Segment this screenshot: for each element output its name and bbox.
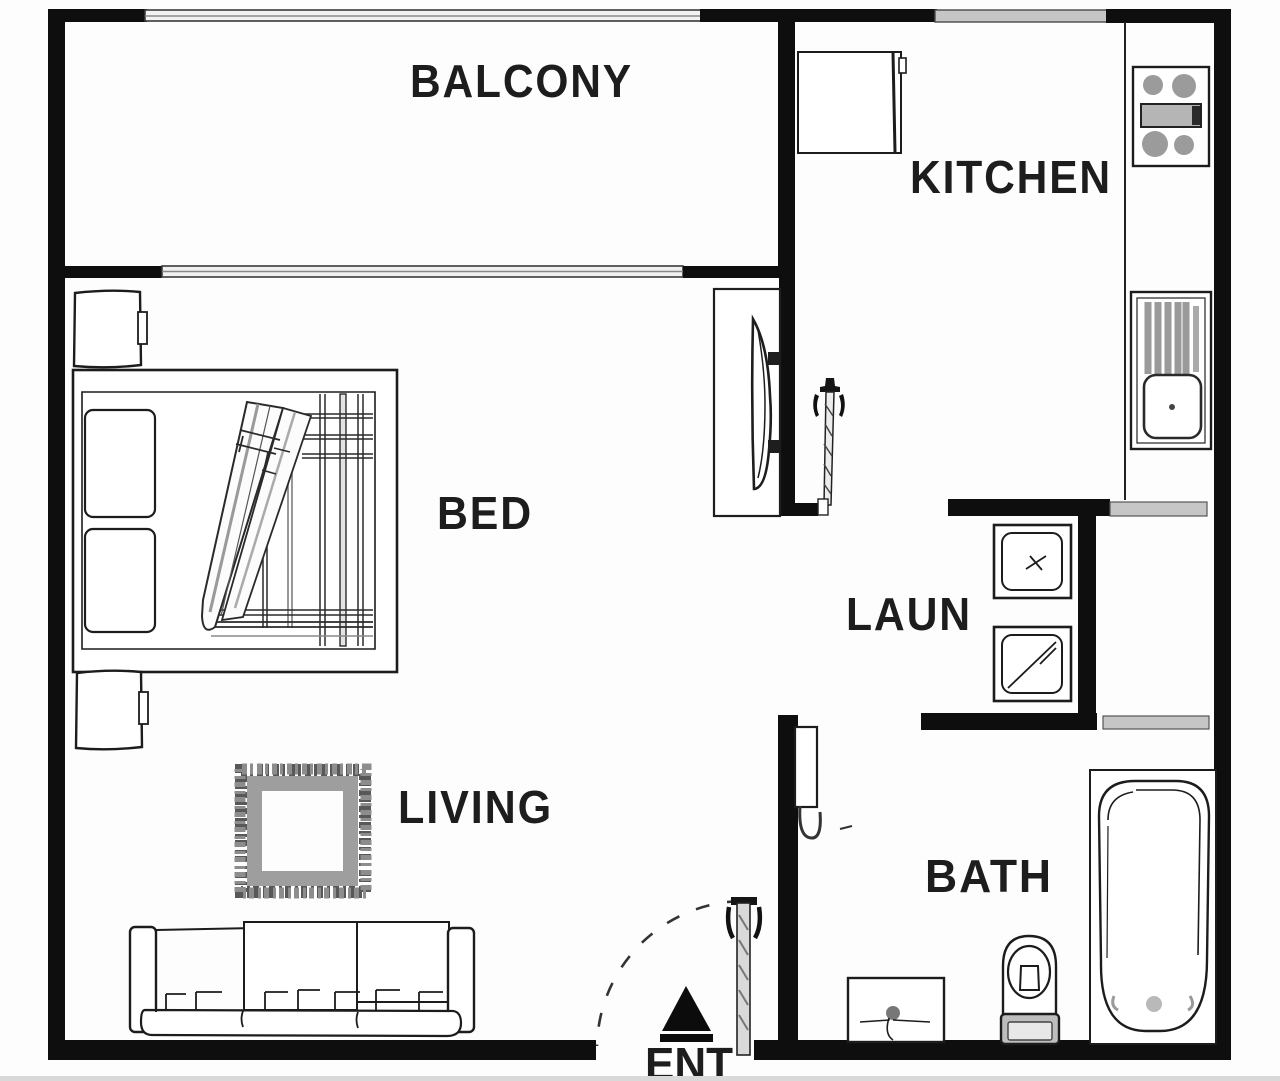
svg-text:LAUN: LAUN xyxy=(846,588,972,640)
svg-text:BATH: BATH xyxy=(925,850,1053,902)
svg-text:BED: BED xyxy=(437,487,533,539)
svg-text:KITCHEN: KITCHEN xyxy=(910,151,1112,203)
svg-text:LIVING: LIVING xyxy=(398,781,553,833)
svg-text:BALCONY: BALCONY xyxy=(410,55,633,107)
svg-text:ENT: ENT xyxy=(645,1038,733,1081)
